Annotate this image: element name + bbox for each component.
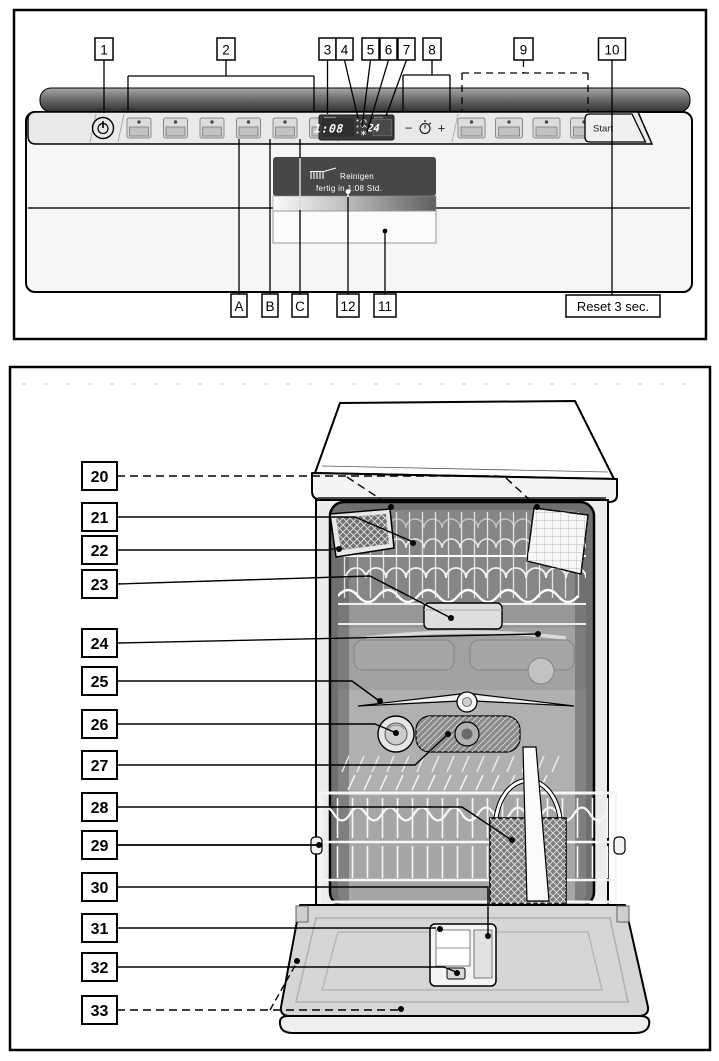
svg-text:31: 31 (91, 921, 109, 938)
svg-text:20: 20 (91, 469, 109, 486)
svg-text:2: 2 (222, 43, 230, 58)
callout-8: 8 (423, 38, 441, 60)
minus-button: − (405, 121, 413, 136)
svg-text:26: 26 (91, 717, 109, 734)
svg-text:B: B (265, 299, 274, 314)
figure1-control-panel: 1:08 24 − + Start (14, 10, 706, 339)
svg-text:28: 28 (91, 800, 109, 817)
callout-26: 26 (82, 710, 117, 738)
svg-text:9: 9 (520, 43, 528, 58)
detergent-dispenser (430, 924, 496, 986)
callout-23: 23 (82, 570, 117, 598)
callout-dot-12 (346, 189, 351, 194)
callout-24: 24 (82, 629, 117, 657)
figures-canvas: 1:08 24 − + Start (0, 0, 719, 1061)
option-button (496, 118, 523, 138)
svg-text:C: C (295, 299, 305, 314)
numeric-display: 1:08 24 (314, 115, 394, 140)
svg-text:25: 25 (91, 674, 109, 691)
program-button (127, 118, 151, 138)
svg-text:23: 23 (91, 577, 109, 594)
info-display-program: Reinigen (340, 172, 374, 181)
svg-text:4: 4 (341, 43, 349, 58)
filter-assembly (416, 716, 520, 752)
callout-12: 12 (337, 294, 359, 317)
callout-A: A (231, 294, 247, 317)
option-button (458, 118, 485, 138)
svg-text:32: 32 (91, 960, 109, 977)
callout-reset: Reset 3 sec. (566, 295, 660, 317)
callout-11: 11 (374, 294, 396, 317)
figure2-interior-view: 20 21 22 23 24 25 26 27 28 29 30 31 32 3… (10, 367, 710, 1050)
callout-33: 33 (82, 996, 117, 1024)
callout-5: 5 (362, 38, 379, 60)
program-button (200, 118, 224, 138)
callout-20: 20 (82, 462, 117, 490)
remaining-time-display: 1:08 (314, 122, 345, 136)
program-button (164, 118, 188, 138)
svg-text:11: 11 (378, 299, 392, 314)
svg-text:21: 21 (91, 510, 109, 527)
callout-21: 21 (82, 503, 117, 531)
callout-1: 1 (95, 38, 113, 60)
callout-7: 7 (398, 38, 415, 60)
svg-text:22: 22 (91, 543, 109, 560)
svg-text:30: 30 (91, 880, 109, 897)
svg-text:8: 8 (428, 43, 436, 58)
svg-text:1: 1 (100, 43, 108, 58)
svg-text:Reset 3 sec.: Reset 3 sec. (577, 299, 649, 314)
callout-28: 28 (82, 793, 117, 821)
callout-25: 25 (82, 667, 117, 695)
start-button-label: Start (593, 124, 613, 135)
basket-bumper-right (614, 837, 625, 854)
callout-3: 3 (319, 38, 336, 60)
svg-text:27: 27 (91, 758, 109, 775)
callout-B: B (262, 294, 278, 317)
callout-6: 6 (380, 38, 397, 60)
program-button (273, 118, 297, 138)
callout-22: 22 (82, 536, 117, 564)
manual-page: 1:08 24 − + Start (0, 0, 719, 1061)
svg-text:29: 29 (91, 838, 109, 855)
svg-text:12: 12 (340, 299, 355, 314)
plus-button: + (438, 121, 446, 136)
svg-text:5: 5 (367, 43, 375, 58)
callout-2: 2 (217, 38, 235, 60)
basket-tray (424, 603, 502, 629)
svg-text:33: 33 (91, 1003, 109, 1020)
callout-dot-11 (383, 229, 388, 234)
svg-text:6: 6 (385, 43, 393, 58)
svg-text:10: 10 (604, 43, 619, 58)
callout-30: 30 (82, 873, 117, 901)
callout-29: 29 (82, 831, 117, 859)
callout-9: 9 (514, 38, 533, 60)
program-button (237, 118, 261, 138)
info-display: Reinigen fertig in 1:08 Std. (273, 157, 436, 243)
worktop (312, 401, 617, 502)
option-button (533, 118, 560, 138)
callout-31: 31 (82, 914, 117, 942)
callout-C: C (292, 294, 308, 317)
callout-10: 10 (599, 38, 626, 60)
callout-4: 4 (336, 38, 353, 60)
door-base-band (280, 1016, 649, 1033)
callout-32: 32 (82, 953, 117, 981)
svg-text:24: 24 (91, 636, 109, 653)
svg-text:3: 3 (324, 43, 332, 58)
svg-text:7: 7 (403, 43, 411, 58)
svg-text:A: A (234, 299, 243, 314)
callout-27: 27 (82, 751, 117, 779)
